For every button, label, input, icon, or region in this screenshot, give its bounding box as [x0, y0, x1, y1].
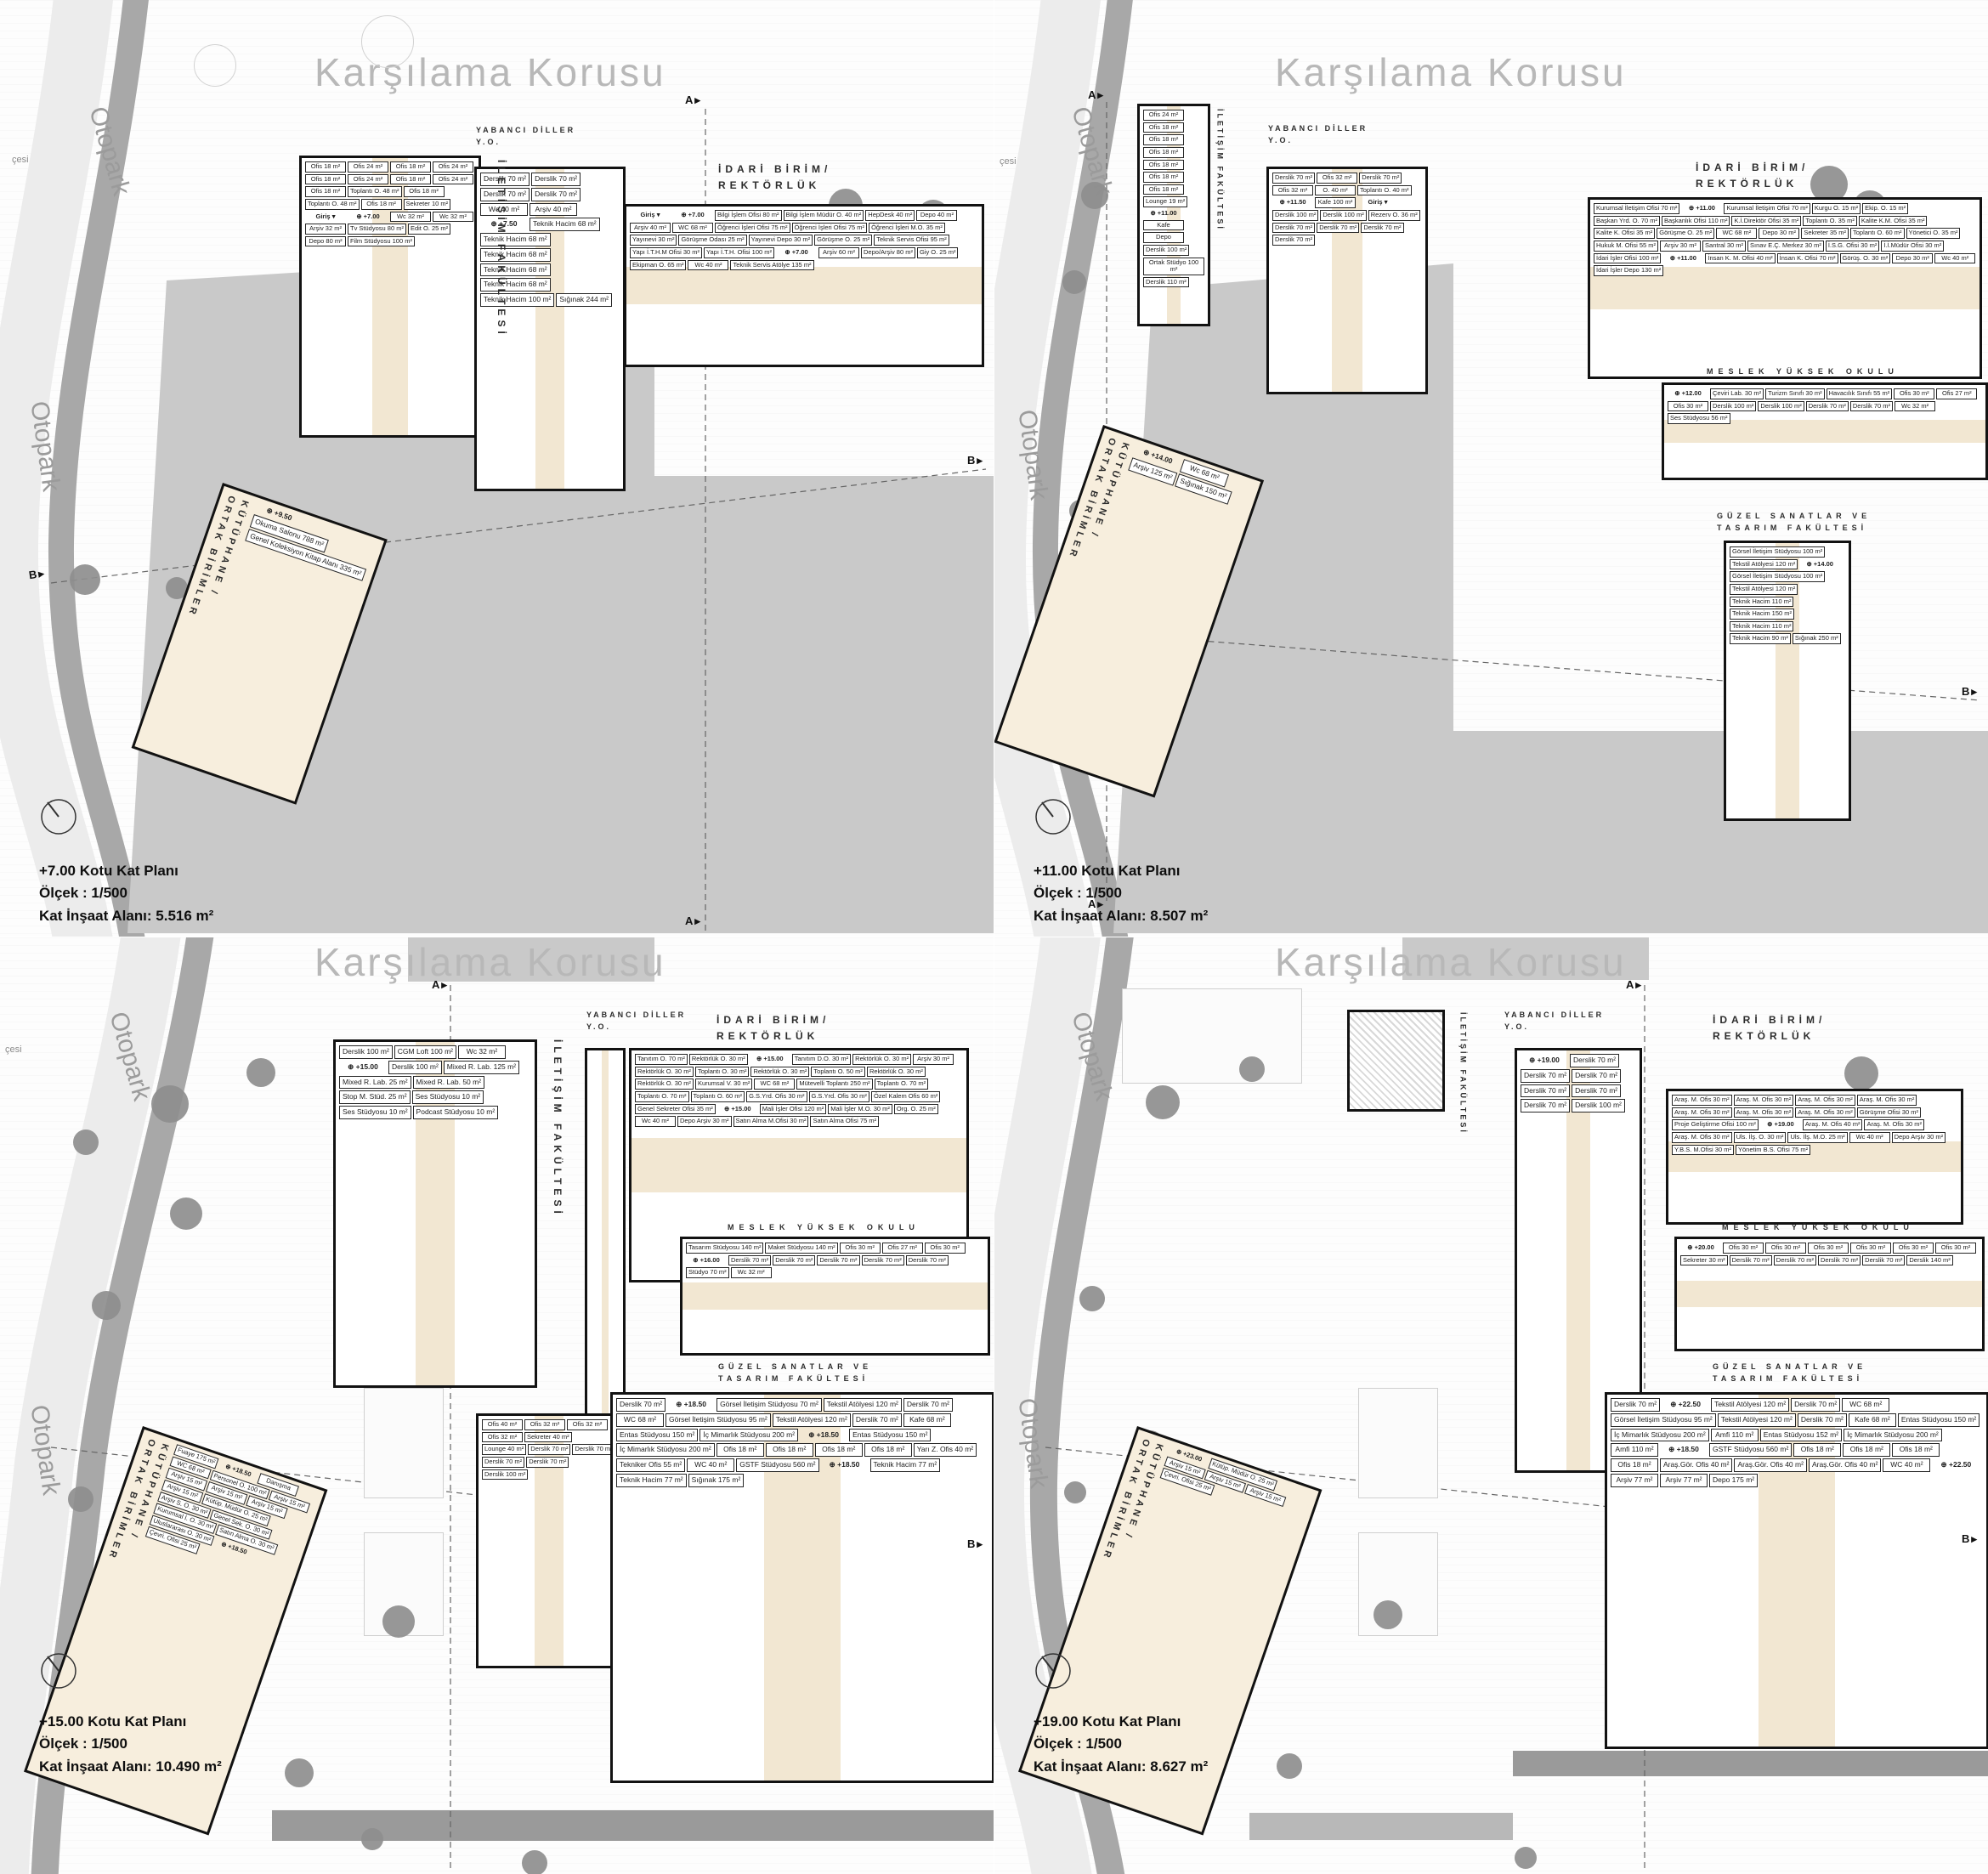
- room-label: Wc 32 m²: [731, 1267, 772, 1278]
- room-label: Görüşme Odası 25 m²: [678, 235, 746, 246]
- tree: [382, 1605, 415, 1638]
- room-list: Ofis 40 m²Ofis 32 m²Ofis 32 m²Ofis 32 m²…: [479, 1416, 620, 1666]
- room-label: İç Mimarlık Stüdyosu 200 m²: [699, 1429, 798, 1442]
- room-label: Ofis 18 m²: [1611, 1458, 1658, 1472]
- room-label: Entas Stüdyosu 152 m²: [1760, 1429, 1842, 1442]
- room-label: Sekreter 30 m²: [1680, 1255, 1728, 1266]
- room-label: Genel Sekreter Ofisi 35 m²: [635, 1104, 716, 1115]
- building-label-iletisim: İLETİŞİM FAKÜLTESİ: [1214, 109, 1226, 296]
- room-label: Araş.Gör. Ofis 40 m²: [1734, 1458, 1806, 1472]
- room-label: Toplantı O. 48 m²: [305, 199, 360, 210]
- room-label: Görsel İletişim Stüdyosu 95 m²: [665, 1413, 771, 1427]
- room-label: Başkan Yrd. O. 70 m²: [1594, 216, 1660, 227]
- room-label: Ofis 18 m²: [305, 161, 346, 173]
- room-label: Wc 32 m²: [390, 212, 431, 223]
- room-label: Wc 40 m²: [688, 260, 728, 271]
- level-marker: ⊕ +7.00: [672, 210, 713, 221]
- room-label: Tekniker Ofis 55 m²: [616, 1458, 685, 1472]
- room-label: İç Mimarlık Stüdyosu 200 m²: [1611, 1429, 1709, 1442]
- room-list: Tasarım Stüdyosu 140 m²Maket Stüdyosu 14…: [682, 1239, 988, 1353]
- room-list: [1350, 1012, 1442, 1109]
- room-label: Film Stüdyosu 100 m²: [348, 236, 415, 247]
- room-label: Araş. M. Ofis 30 m²: [1672, 1107, 1732, 1118]
- room-label: Arşiv 30 m²: [913, 1054, 954, 1065]
- tree-outline: [194, 44, 236, 87]
- room-list: ⊕ +12.00Çeviri Lab. 30 m²Turizm Sınıfı 3…: [1664, 385, 1985, 478]
- building-yabanci-diller: Derslik 70 m²Ofis 32 m²Derslik 70 m²Ofis…: [1266, 167, 1428, 394]
- north-compass: [39, 797, 78, 836]
- tree: [70, 564, 100, 595]
- room-label: WC 68 m²: [616, 1413, 664, 1427]
- tree: [1277, 1753, 1302, 1779]
- section-marker-b: B: [1962, 1532, 1977, 1546]
- building-iletisim: Ofis 18 m²Ofis 24 m²Ofis 18 m²Ofis 24 m²…: [299, 156, 481, 438]
- room-label: Derslik 100 m²: [1320, 210, 1366, 221]
- building-meslek-yuksek-okulu: Tasarım Stüdyosu 140 m²Maket Stüdyosu 14…: [680, 1237, 990, 1356]
- room-label: Ofis 30 m²: [1765, 1243, 1806, 1254]
- room-label: Ofis 30 m²: [1935, 1243, 1976, 1254]
- room-label: İ.İ.Müdür Ofisi 30 m²: [1881, 241, 1944, 252]
- room-label: Rektörlük O. 30 m²: [852, 1054, 911, 1065]
- room-label: Arşiv 60 m²: [818, 247, 859, 258]
- room-label: Derslik 70 m²: [572, 1444, 615, 1455]
- room-label: Derslik 70 m²: [773, 1255, 815, 1266]
- room-label: Çeviri Lab. 30 m²: [1710, 388, 1764, 399]
- building-iletisim: [1347, 1010, 1445, 1112]
- building-idari-birim: Kurumsal İletişim Ofisi 70 m²⊕ +11.00Kur…: [1588, 197, 1982, 379]
- room-label: Kurumsal İletişim Ofisi 70 m²: [1594, 203, 1679, 214]
- room-label: Teknik Hacim 110 m²: [1730, 597, 1793, 608]
- room-label: Derslik 70 m²: [906, 1255, 949, 1266]
- room-label: Ofis 30 m²: [1850, 1243, 1891, 1254]
- plan-area: Kat İnşaat Alanı: 8.507 m²: [1034, 905, 1208, 927]
- level-marker: ⊕ +12.00: [1668, 388, 1708, 399]
- room-label: Bilgi İşlem Ofisi 80 m²: [715, 210, 782, 221]
- entrance-label: Giriş ▾: [305, 212, 346, 223]
- room-label: Ofis 30 m²: [1808, 1243, 1849, 1254]
- room-label: Araş. M. Ofis 30 m²: [1672, 1132, 1732, 1143]
- room-label: Derslik 70 m²: [616, 1398, 665, 1412]
- room-label: Öğrenci İşleri Ofisi 75 m²: [715, 223, 790, 234]
- level-marker: ⊕ +15.00: [339, 1061, 387, 1074]
- room-label: İnsan K. M. Ofisi 40 m²: [1705, 253, 1775, 264]
- north-compass: [39, 1651, 78, 1690]
- room-label: Teknik Hacim 90 m²: [1730, 633, 1791, 644]
- room-label: Ofis 18 m²: [716, 1443, 764, 1457]
- room-label: Görüşme O. 25 m²: [814, 235, 872, 246]
- room-label: Depo 175 m²: [1709, 1474, 1758, 1487]
- building-yabanci-diller-classrooms: Ofis 40 m²Ofis 32 m²Ofis 32 m²Ofis 32 m²…: [476, 1413, 622, 1668]
- room-label: Kafe 100 m²: [1315, 197, 1356, 208]
- room-label: Teknik Hacim 68 m²: [480, 248, 551, 262]
- north-compass: [1034, 1651, 1073, 1690]
- room-label: Derslik 100 m²: [339, 1045, 393, 1059]
- room-label: Entas Stüdyosu 150 m²: [616, 1429, 698, 1442]
- room-label: Derslik 70 m²: [1791, 1398, 1840, 1412]
- room-label: Wc 32 m²: [458, 1045, 506, 1059]
- plan-title-block: +11.00 Kotu Kat Planı Ölçek : 1/500 Kat …: [1034, 860, 1208, 927]
- context-building-outline: [1358, 1388, 1438, 1498]
- room-label: WC 68 m²: [754, 1079, 795, 1090]
- tree-outline: [361, 15, 414, 68]
- room-label: İdari İşler Depo 130 m²: [1594, 265, 1663, 276]
- room-list: Ofis 24 m²Ofis 18 m²Ofis 18 m²Ofis 18 m²…: [1140, 106, 1208, 324]
- room-label: Hukuk M. Ofisi 55 m²: [1594, 241, 1658, 252]
- tree: [1373, 1600, 1402, 1629]
- room-label: Toplantı O. 60 m²: [1850, 228, 1905, 239]
- tree: [1064, 1481, 1086, 1503]
- building-meslek-yuksek-okulu: ⊕ +12.00Çeviri Lab. 30 m²Turizm Sınıfı 3…: [1662, 382, 1988, 480]
- room-label: Bilgi İşlem Müdür O. 40 m²: [784, 210, 864, 221]
- room-label: Teknik Hacim 68 m²: [480, 233, 551, 246]
- building-iletisim: Ofis 24 m²Ofis 18 m²Ofis 18 m²Ofis 18 m²…: [1137, 104, 1210, 326]
- street-label: çesi: [12, 155, 29, 165]
- room-label: Yönetim B.S. Ofisi 75 m²: [1736, 1145, 1810, 1156]
- room-label: Öğrenci İşleri Ofisi 75 m²: [792, 223, 868, 234]
- room-label: Stüdyo 70 m²: [686, 1267, 729, 1278]
- building-idari-birim: Araş. M. Ofis 30 m²Araş. M. Ofis 30 m²Ar…: [1666, 1089, 1963, 1225]
- room-label: Ofis 32 m²: [1317, 173, 1357, 184]
- building-guzel-sanatlar: Görsel İletişim Stüdyosu 100 m²Tekstil A…: [1724, 541, 1851, 821]
- level-marker: ⊕ +11.50: [1272, 197, 1313, 208]
- room-label: Uls. İlş. M.O. 25 m²: [1787, 1132, 1847, 1143]
- room-label: Y.B.S. M.Ofisi 30 m²: [1672, 1145, 1734, 1156]
- room-label: Podcast Stüdyosu 10 m²: [413, 1106, 499, 1119]
- room-label: Ofis 24 m²: [1143, 110, 1184, 121]
- tree: [285, 1758, 314, 1787]
- forest-label: Karşılama Korusu: [314, 939, 666, 985]
- tree: [1239, 1056, 1265, 1082]
- tree: [68, 1486, 93, 1512]
- building-label-guzel: GÜZEL SANATLAR VE TASARIM FAKÜLTESİ: [718, 1361, 872, 1385]
- building-label-yabanci: YABANCI DİLLER Y.O.: [476, 124, 575, 149]
- room-label: Derslik 70 m²: [1850, 401, 1893, 412]
- room-label: Rektörlük O. 30 m²: [635, 1079, 694, 1090]
- room-label: Depo 30 m²: [1892, 253, 1933, 264]
- room-label: Lounge 19 m²: [1143, 196, 1187, 207]
- room-label: G.S.Yrd. Ofis 30 m²: [809, 1091, 869, 1102]
- room-label: WC 40 m²: [687, 1458, 734, 1472]
- building-label-guzel: GÜZEL SANATLAR VE TASARIM FAKÜLTESİ: [1713, 1361, 1866, 1385]
- room-label: Edit O. 25 m²: [408, 224, 450, 235]
- room-label: Kafe 68 m²: [903, 1413, 951, 1427]
- room-label: Ofis 18 m²: [1843, 1443, 1890, 1457]
- room-label: Ofis 18 m²: [766, 1443, 813, 1457]
- room-label: Turizm Sınıfı 30 m²: [1765, 388, 1824, 399]
- room-label: Ofis 18 m²: [1143, 134, 1184, 145]
- plan-title-block: +15.00 Kotu Kat Planı Ölçek : 1/500 Kat …: [39, 1711, 222, 1778]
- room-label: Rektörlük O. 30 m²: [635, 1067, 694, 1078]
- room-label: Teknik Servis Atölye 135 m²: [730, 260, 813, 271]
- room-label: Derslik 70 m²: [728, 1255, 771, 1266]
- building-label-meslek: MESLEK YÜKSEK OKULU: [1707, 365, 1899, 377]
- room-label: Sekreter 10 m²: [404, 199, 451, 210]
- room-label: Derslik 70 m²: [526, 1457, 569, 1468]
- room-label: Derslik 70 m²: [482, 1457, 524, 1468]
- room-label: Arşiv 77 m²: [1660, 1474, 1708, 1487]
- room-label: Depo 40 m²: [916, 210, 957, 221]
- room-label: Öğrenci İşleri M.O. 35 m²: [869, 223, 945, 234]
- room-list: Derslik 70 m²⊕ +22.50Tekstil Atölyesi 12…: [1607, 1395, 1986, 1747]
- room-label: Derslik 70 m²: [903, 1398, 953, 1412]
- room-label: Ofis 32 m²: [1272, 185, 1313, 196]
- building-label-meslek: MESLEK YÜKSEK OKULU: [1722, 1221, 1914, 1233]
- room-label: Derslik 70 m²: [1521, 1069, 1570, 1083]
- room-label: Ofis 24 m²: [348, 161, 388, 173]
- room-label: Kafe: [1143, 220, 1184, 231]
- room-label: Yayınevi Depo 30 m²: [749, 235, 813, 246]
- room-label: Derslik 110 m²: [1143, 277, 1189, 288]
- room-label: Wc 40 m²: [1849, 1132, 1890, 1143]
- room-label: Maket Stüdyosu 140 m²: [765, 1243, 837, 1254]
- room-label: Depo Arşiv 30 m²: [1892, 1132, 1946, 1143]
- room-label: Satın Alma Ofisi 75 m²: [810, 1116, 879, 1127]
- tree: [1062, 270, 1086, 294]
- tree: [73, 1129, 99, 1155]
- level-marker: ⊕ +7.00: [776, 247, 817, 258]
- room-label: Derslik 70 m²: [1359, 173, 1402, 184]
- room-label: İdari İşler Ofisi 100 m²: [1594, 253, 1661, 264]
- room-label: Teknik Hacim 68 m²: [480, 263, 551, 277]
- room-label: Amfi 110 m²: [1711, 1429, 1759, 1442]
- room-label: WC 68 m²: [1716, 228, 1757, 239]
- room-label: Wc 32 m²: [433, 212, 473, 223]
- room-label: Mixed R. Lab. 50 m²: [413, 1076, 485, 1090]
- room-label: Derslik 70 m²: [1806, 401, 1849, 412]
- room-label: Arşiv 40 m²: [630, 223, 671, 234]
- room-list: Görsel İletişim Stüdyosu 100 m²Tekstil A…: [1726, 543, 1849, 818]
- room-label: Derslik 70 m²: [1272, 223, 1315, 234]
- room-label: Derslik 70 m²: [1798, 1413, 1847, 1427]
- room-label: Amfi 110 m²: [1611, 1443, 1658, 1457]
- room-label: Mixed R. Lab. 125 m²: [444, 1061, 519, 1074]
- room-label: İ.S.G. Ofisi 30 m²: [1826, 241, 1880, 252]
- room-label: Ofis 18 m²: [815, 1443, 863, 1457]
- room-label: Ofis 18 m²: [390, 174, 431, 185]
- room-label: Derslik 70 m²: [1572, 1069, 1621, 1083]
- room-label: GSTF Stüdyosu 560 m²: [1709, 1443, 1792, 1457]
- room-label: Tanıtım D.O. 30 m²: [792, 1054, 851, 1065]
- room-label: Entas Stüdyosu 150 m²: [849, 1429, 931, 1442]
- room-label: Derslik 100 m²: [388, 1061, 442, 1074]
- room-label: Teknik Hacim 68 m²: [530, 218, 600, 231]
- level-marker: ⊕ +18.50: [821, 1458, 869, 1472]
- room-label: Uls. İlş. O. 30 m²: [1734, 1132, 1787, 1143]
- room-label: Tekstil Atölyesi 120 m²: [1730, 584, 1798, 595]
- room-label: Derslik 70 m²: [1272, 173, 1315, 184]
- building-guzel-sanatlar: Derslik 70 m²⊕ +22.50Tekstil Atölyesi 12…: [1605, 1392, 1988, 1749]
- room-list: Derslik 70 m²Ofis 32 m²Derslik 70 m²Ofis…: [1269, 169, 1425, 392]
- section-marker-a: A: [685, 93, 700, 107]
- plan-title: +19.00 Kotu Kat Planı: [1034, 1711, 1208, 1733]
- room-label: Görüşme O. 25 m²: [1657, 228, 1714, 239]
- room-label: Satın Alma M.Ofisi 30 m²: [733, 1116, 809, 1127]
- room-label: Ofis 18 m²: [1143, 184, 1184, 195]
- room-label: Araş. M. Ofis 40 m²: [1803, 1119, 1863, 1130]
- room-label: Derslik 100 m²: [1143, 245, 1189, 256]
- room-label: Araş. M. Ofis 30 m²: [1795, 1095, 1855, 1106]
- room-label: Derslik 70 m²: [1774, 1255, 1816, 1266]
- room-label: Rektörlük O. 30 m²: [689, 1054, 748, 1065]
- tree: [522, 1850, 547, 1874]
- building-label-yabanci: YABANCI DİLLER Y.O.: [1504, 1009, 1604, 1033]
- room-label: Wc 32 m²: [1895, 401, 1935, 412]
- section-marker-a: A: [432, 978, 447, 992]
- room-label: WC 68 m²: [672, 223, 713, 234]
- room-label: Mali İşler M.O. 30 m²: [828, 1104, 892, 1115]
- room-label: Derslik 70 m²: [1317, 223, 1359, 234]
- level-marker: ⊕ +22.50: [1932, 1458, 1980, 1472]
- room-label: Ofis 30 m²: [1894, 388, 1934, 399]
- room-label: Derslik 70 m²: [1730, 1255, 1772, 1266]
- room-label: Sınav E.Ç. Merkez 30 m²: [1747, 241, 1824, 252]
- room-label: Yapı İ.T.H.M Ofisi 30 m²: [630, 247, 702, 258]
- room-label: Sığınak 244 m²: [556, 293, 612, 307]
- tree: [361, 1828, 383, 1850]
- room-list: Giriş ▾⊕ +7.00Bilgi İşlem Ofisi 80 m²Bil…: [626, 207, 982, 365]
- room-label: Araş. M. Ofis 30 m²: [1795, 1107, 1855, 1118]
- room-label: Depo 30 m²: [1759, 228, 1799, 239]
- room-label: Ofis 30 m²: [925, 1243, 966, 1254]
- plan-title: +15.00 Kotu Kat Planı: [39, 1711, 222, 1733]
- context-building-outline: [1122, 988, 1302, 1084]
- room-label: Ofis 40 m²: [482, 1419, 523, 1430]
- quadrant-plan-15: Karşılama Korusu Otopark Otopark çesi İL…: [0, 937, 994, 1874]
- section-marker-a: A: [1088, 88, 1103, 102]
- room-list: Araş. M. Ofis 30 m²Araş. M. Ofis 30 m²Ar…: [1668, 1091, 1961, 1222]
- level-marker: ⊕ +11.00: [1143, 209, 1184, 218]
- room-label: Org. O. 25 m²: [894, 1104, 938, 1115]
- room-label: Derslik 70 m²: [1272, 235, 1315, 246]
- section-marker-b: B: [1962, 685, 1977, 699]
- room-label: Kurgu O. 15 m²: [1812, 203, 1861, 214]
- quadrant-plan-11: Karşılama Korusu Otopark Otopark çesi İL…: [994, 0, 1988, 937]
- room-label: Arşiv 40 m²: [530, 203, 577, 217]
- room-label: Araş.Gör. Ofis 40 m²: [1809, 1458, 1881, 1472]
- room-label: Ekipman O. 65 m²: [630, 260, 686, 271]
- room-label: Depo Arşiv 30 m²: [677, 1116, 732, 1127]
- room-label: Ofis 18 m²: [1143, 147, 1184, 158]
- building-label-idari: İDARİ BİRİM/ REKTÖRLÜK: [718, 161, 831, 194]
- room-label: Kurumsal V. 30 m²: [695, 1079, 752, 1090]
- room-label: Derslik 70 m²: [531, 188, 581, 201]
- tree: [170, 1197, 202, 1230]
- building-iletisim: Derslik 100 m²CGM Loft 100 m²Wc 32 m²⊕ +…: [333, 1039, 537, 1388]
- street-label: çesi: [5, 1045, 22, 1055]
- room-label: Görsel İletişim Stüdyosu 95 m²: [1611, 1413, 1716, 1427]
- room-label: Ofis 18 m²: [1143, 122, 1184, 133]
- room-label: Derslik 100 m²: [1758, 401, 1804, 412]
- room-label: Wc 40 m²: [1934, 253, 1975, 264]
- room-label: O. 40 m²: [1315, 185, 1356, 196]
- room-label: Toplantı O. 48 m²: [348, 186, 402, 197]
- level-marker: ⊕ +15.00: [717, 1104, 758, 1115]
- room-label: Ofis 18 m²: [1793, 1443, 1841, 1457]
- tree: [1515, 1847, 1537, 1869]
- room-label: Yapı İ.T.H. Ofisi 100 m²: [704, 247, 774, 258]
- room-label: Toplantı O. 70 m²: [635, 1091, 689, 1102]
- room-label: Kalite K.M. Ofisi 35 m²: [1859, 216, 1928, 227]
- room-label: Teknik Hacim 77 m²: [870, 1458, 941, 1472]
- room-label: Özel Kalem Ofis 60 m²: [871, 1091, 940, 1102]
- room-label: Ofis 18 m²: [390, 161, 431, 173]
- building-label-idari: İDARİ BİRİM/ REKTÖRLÜK: [1696, 160, 1809, 192]
- room-label: Ofis 18 m²: [305, 174, 346, 185]
- room-label: Yönetici O. 35 m²: [1906, 228, 1961, 239]
- plan-area: Kat İnşaat Alanı: 8.627 m²: [1034, 1756, 1208, 1778]
- room-label: Toplantı O. 30 m²: [695, 1067, 750, 1078]
- plan-title: +7.00 Kotu Kat Planı: [39, 860, 213, 882]
- room-label: Derslik 70 m²: [1572, 1084, 1621, 1098]
- room-label: Tekstil Atölyesi 120 m²: [1711, 1398, 1789, 1412]
- room-label: Ofis 18 m²: [864, 1443, 912, 1457]
- tree: [92, 1291, 121, 1320]
- room-label: Toplantı O. 50 m²: [811, 1067, 865, 1078]
- room-label: Ofis 24 m²: [348, 174, 388, 185]
- room-label: Depo: [1143, 232, 1184, 243]
- level-marker: ⊕ +14.00: [1799, 559, 1840, 570]
- room-label: Tekstil Atölyesi 120 m²: [1718, 1413, 1796, 1427]
- room-label: İnsan K. Ofisi 70 m²: [1777, 253, 1838, 264]
- room-label: Ofis 18 m²: [1143, 160, 1184, 171]
- room-label: WC 68 m²: [1842, 1398, 1889, 1412]
- room-label: Tasarım Stüdyosu 140 m²: [686, 1243, 763, 1254]
- room-label: Tekstil Atölyesi 120 m²: [824, 1398, 902, 1412]
- room-label: Araş. M. Ofis 30 m²: [1672, 1095, 1732, 1106]
- room-label: Rezerv O. 36 m²: [1368, 210, 1420, 221]
- room-label: Kurumsal İletişim Ofisi 70 m²: [1724, 203, 1810, 214]
- tree: [246, 1058, 275, 1087]
- room-label: CGM Loft 100 m²: [394, 1045, 456, 1059]
- room-label: Mütevelli Toplantı 250 m²: [796, 1079, 872, 1090]
- room-label: Havacılık Sınıfı 55 m²: [1827, 388, 1893, 399]
- room-label: Derslik 70 m²: [817, 1255, 859, 1266]
- room-label: Tekstil Atölyesi 120 m²: [773, 1413, 851, 1427]
- room-label: Ses Stüdyosu 10 m²: [339, 1106, 411, 1119]
- room-list: Ofis 18 m²Ofis 24 m²Ofis 18 m²Ofis 24 m²…: [302, 158, 479, 435]
- room-label: Ofis 24 m²: [433, 161, 473, 173]
- room-label: GSTF Stüdyosu 560 m²: [736, 1458, 818, 1472]
- room-label: Santral 30 m²: [1702, 241, 1746, 252]
- room-label: Ofis 32 m²: [482, 1432, 523, 1443]
- room-label: Teknik Hacim 68 m²: [480, 278, 551, 292]
- room-label: Depo/Arşiv 80 m²: [861, 247, 915, 258]
- room-label: Derslik 70 m²: [1521, 1084, 1570, 1098]
- room-label: Sığınak 250 m²: [1793, 633, 1841, 644]
- room-label: Görsel İletişim Stüdyosu 70 m²: [716, 1398, 822, 1412]
- room-label: Görüşme Ofisi 30 m²: [1857, 1107, 1921, 1118]
- tree: [1079, 1286, 1105, 1311]
- building-idari-birim: Giriş ▾⊕ +7.00Bilgi İşlem Ofisi 80 m²Bil…: [624, 204, 984, 367]
- street-label: çesi: [1000, 156, 1017, 167]
- room-label: Ofis 30 m²: [1668, 401, 1708, 412]
- forest-label: Karşılama Korusu: [1275, 49, 1627, 95]
- building-label-yabanci: YABANCI DİLLER Y.O.: [1268, 122, 1368, 147]
- tree: [1081, 182, 1108, 209]
- level-marker: ⊕ +18.50: [1660, 1443, 1708, 1457]
- north-compass: [1034, 797, 1073, 836]
- building-label-iletisim: İLETİŞİM FAKÜLTESİ: [549, 1039, 565, 1320]
- context-building-outline: [364, 1388, 444, 1498]
- level-marker: ⊕ +18.50: [667, 1398, 715, 1412]
- room-label: K.İ.Direktör Ofisi 35 m²: [1731, 216, 1801, 227]
- level-marker: ⊕ +19.00: [1521, 1054, 1568, 1067]
- quadrant-plan-19: Karşılama Korusu Otopark Otopark İLETİŞİ…: [994, 937, 1988, 1874]
- entrance-label: Giriş ▾: [1357, 197, 1398, 208]
- building-label-iletisim: İLETİŞİM FAKÜLTESİ: [1457, 1012, 1469, 1165]
- room-label: Sekreter 35 m²: [1801, 228, 1849, 239]
- tree: [151, 1085, 189, 1123]
